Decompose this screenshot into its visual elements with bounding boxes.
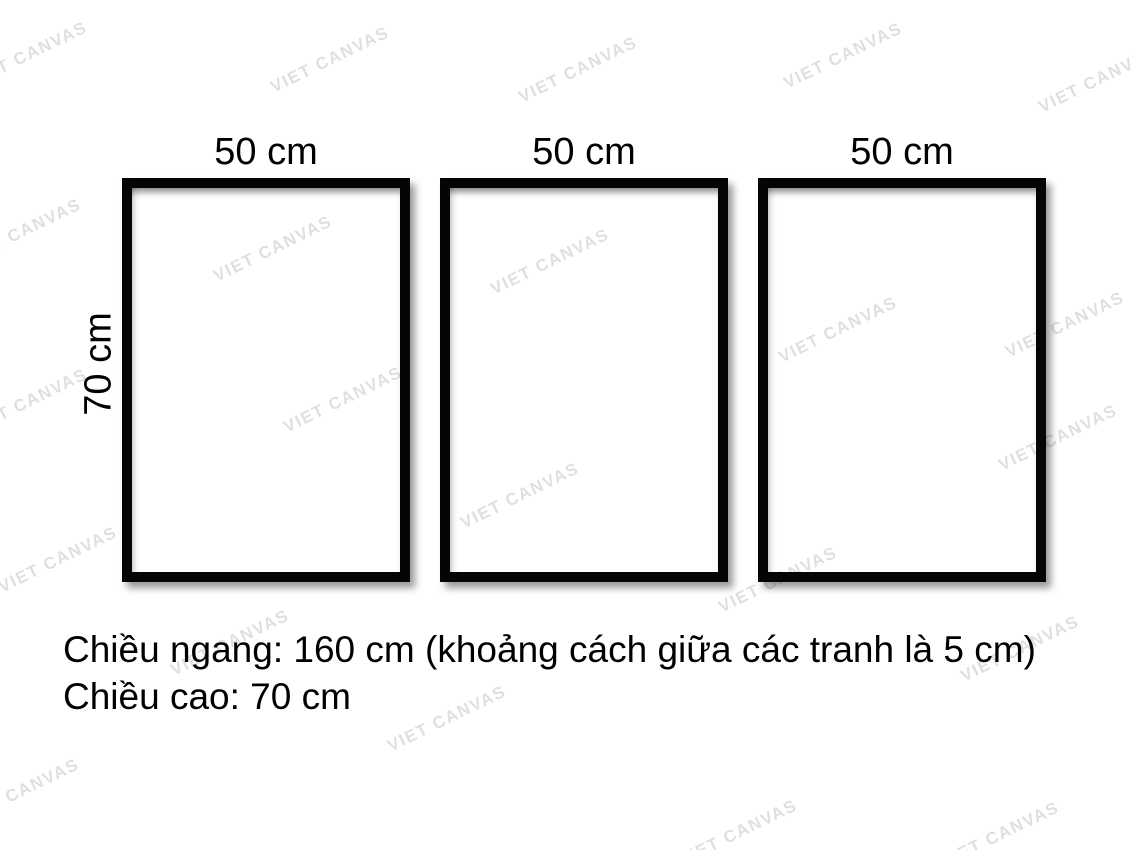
watermark-text: VIET CANVAS bbox=[515, 33, 640, 108]
watermark-text: VIET CANVAS bbox=[675, 796, 800, 850]
watermark-text: VIET CANVAS bbox=[0, 195, 85, 270]
caption-block: Chiều ngang: 160 cm (khoảng cách giữa cá… bbox=[63, 626, 1036, 720]
watermark-text: VIET CANVAS bbox=[0, 18, 91, 93]
frame-2 bbox=[440, 178, 728, 582]
frame-1-width-label: 50 cm bbox=[122, 130, 410, 174]
caption-line-horizontal: Chiều ngang: 160 cm (khoảng cách giữa cá… bbox=[63, 626, 1036, 673]
watermark-text: VIET CANVAS bbox=[780, 19, 905, 94]
watermark-text: VIET CANVAS bbox=[1035, 43, 1134, 118]
watermark-text: VIET CANVAS bbox=[267, 23, 392, 98]
product-dimension-diagram: VIET CANVASVIET CANVASVIET CANVASVIET CA… bbox=[0, 0, 1134, 850]
frame-3 bbox=[758, 178, 1046, 582]
watermark-text: VIET CANVAS bbox=[0, 523, 121, 598]
frame-1 bbox=[122, 178, 410, 582]
frame-2-width-label: 50 cm bbox=[440, 130, 728, 174]
frame-height-label: 70 cm bbox=[78, 312, 121, 415]
watermark-text: VIET CANVAS bbox=[937, 798, 1062, 850]
watermark-text: VIET CANVAS bbox=[0, 755, 83, 830]
caption-line-vertical: Chiều cao: 70 cm bbox=[63, 673, 1036, 720]
frame-3-width-label: 50 cm bbox=[758, 130, 1046, 174]
